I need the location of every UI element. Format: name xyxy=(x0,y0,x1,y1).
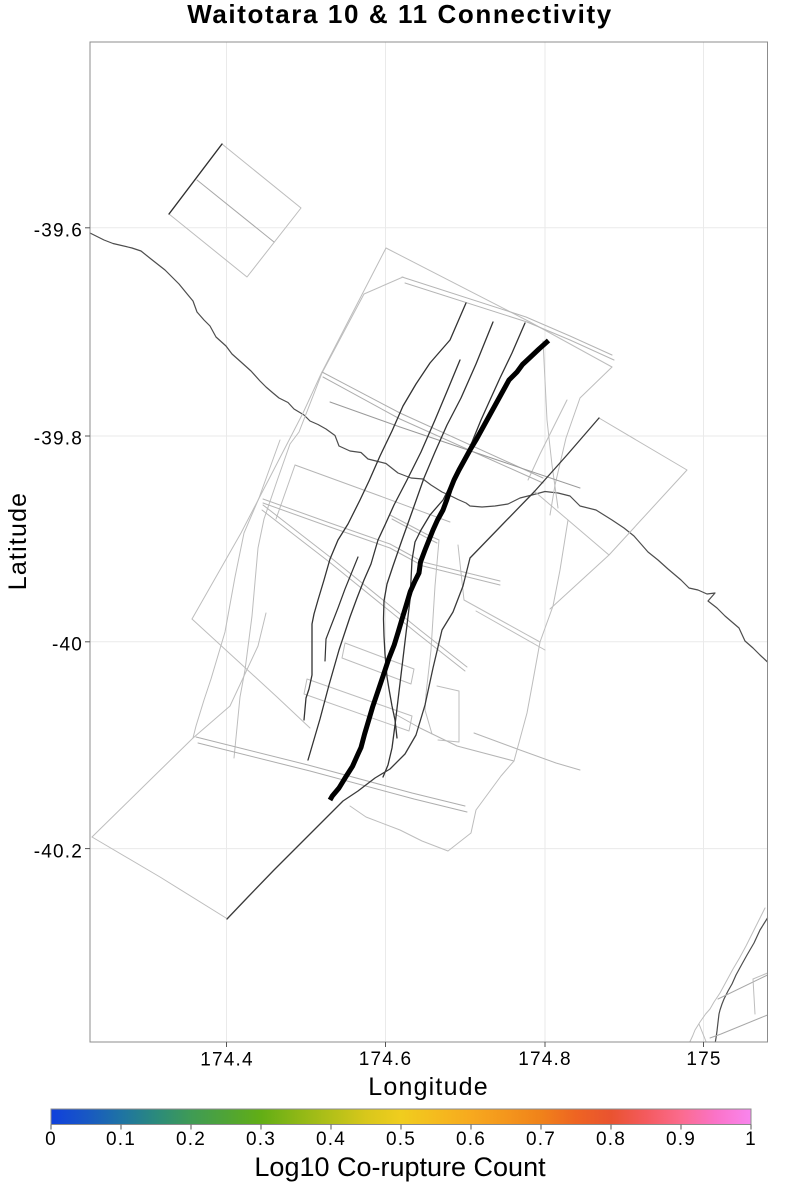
svg-text:0.8: 0.8 xyxy=(596,1129,626,1150)
svg-text:Latitude: Latitude xyxy=(4,492,32,591)
svg-text:-40: -40 xyxy=(52,635,83,656)
svg-text:Log10 Co-rupture Count: Log10 Co-rupture Count xyxy=(254,1152,546,1182)
svg-text:175: 175 xyxy=(686,1049,721,1070)
svg-text:Longitude: Longitude xyxy=(368,1073,489,1101)
svg-text:1: 1 xyxy=(745,1129,757,1150)
svg-text:174.6: 174.6 xyxy=(359,1049,413,1070)
svg-text:0.4: 0.4 xyxy=(316,1129,346,1150)
svg-text:174.8: 174.8 xyxy=(518,1049,572,1070)
svg-text:0.7: 0.7 xyxy=(526,1129,556,1150)
svg-text:0.9: 0.9 xyxy=(666,1129,696,1150)
svg-text:-39.6: -39.6 xyxy=(34,221,83,242)
svg-text:174.4: 174.4 xyxy=(200,1050,254,1071)
svg-text:0.3: 0.3 xyxy=(246,1129,276,1150)
svg-text:-39.8: -39.8 xyxy=(34,429,83,450)
svg-text:0.6: 0.6 xyxy=(456,1129,486,1150)
svg-text:Waitotara 10 & 11 Connectivity: Waitotara 10 & 11 Connectivity xyxy=(187,0,613,29)
svg-text:-40.2: -40.2 xyxy=(34,841,83,862)
svg-text:0.2: 0.2 xyxy=(176,1129,206,1150)
svg-text:0.1: 0.1 xyxy=(106,1129,136,1150)
svg-text:0: 0 xyxy=(45,1129,57,1150)
svg-text:0.5: 0.5 xyxy=(386,1129,416,1150)
